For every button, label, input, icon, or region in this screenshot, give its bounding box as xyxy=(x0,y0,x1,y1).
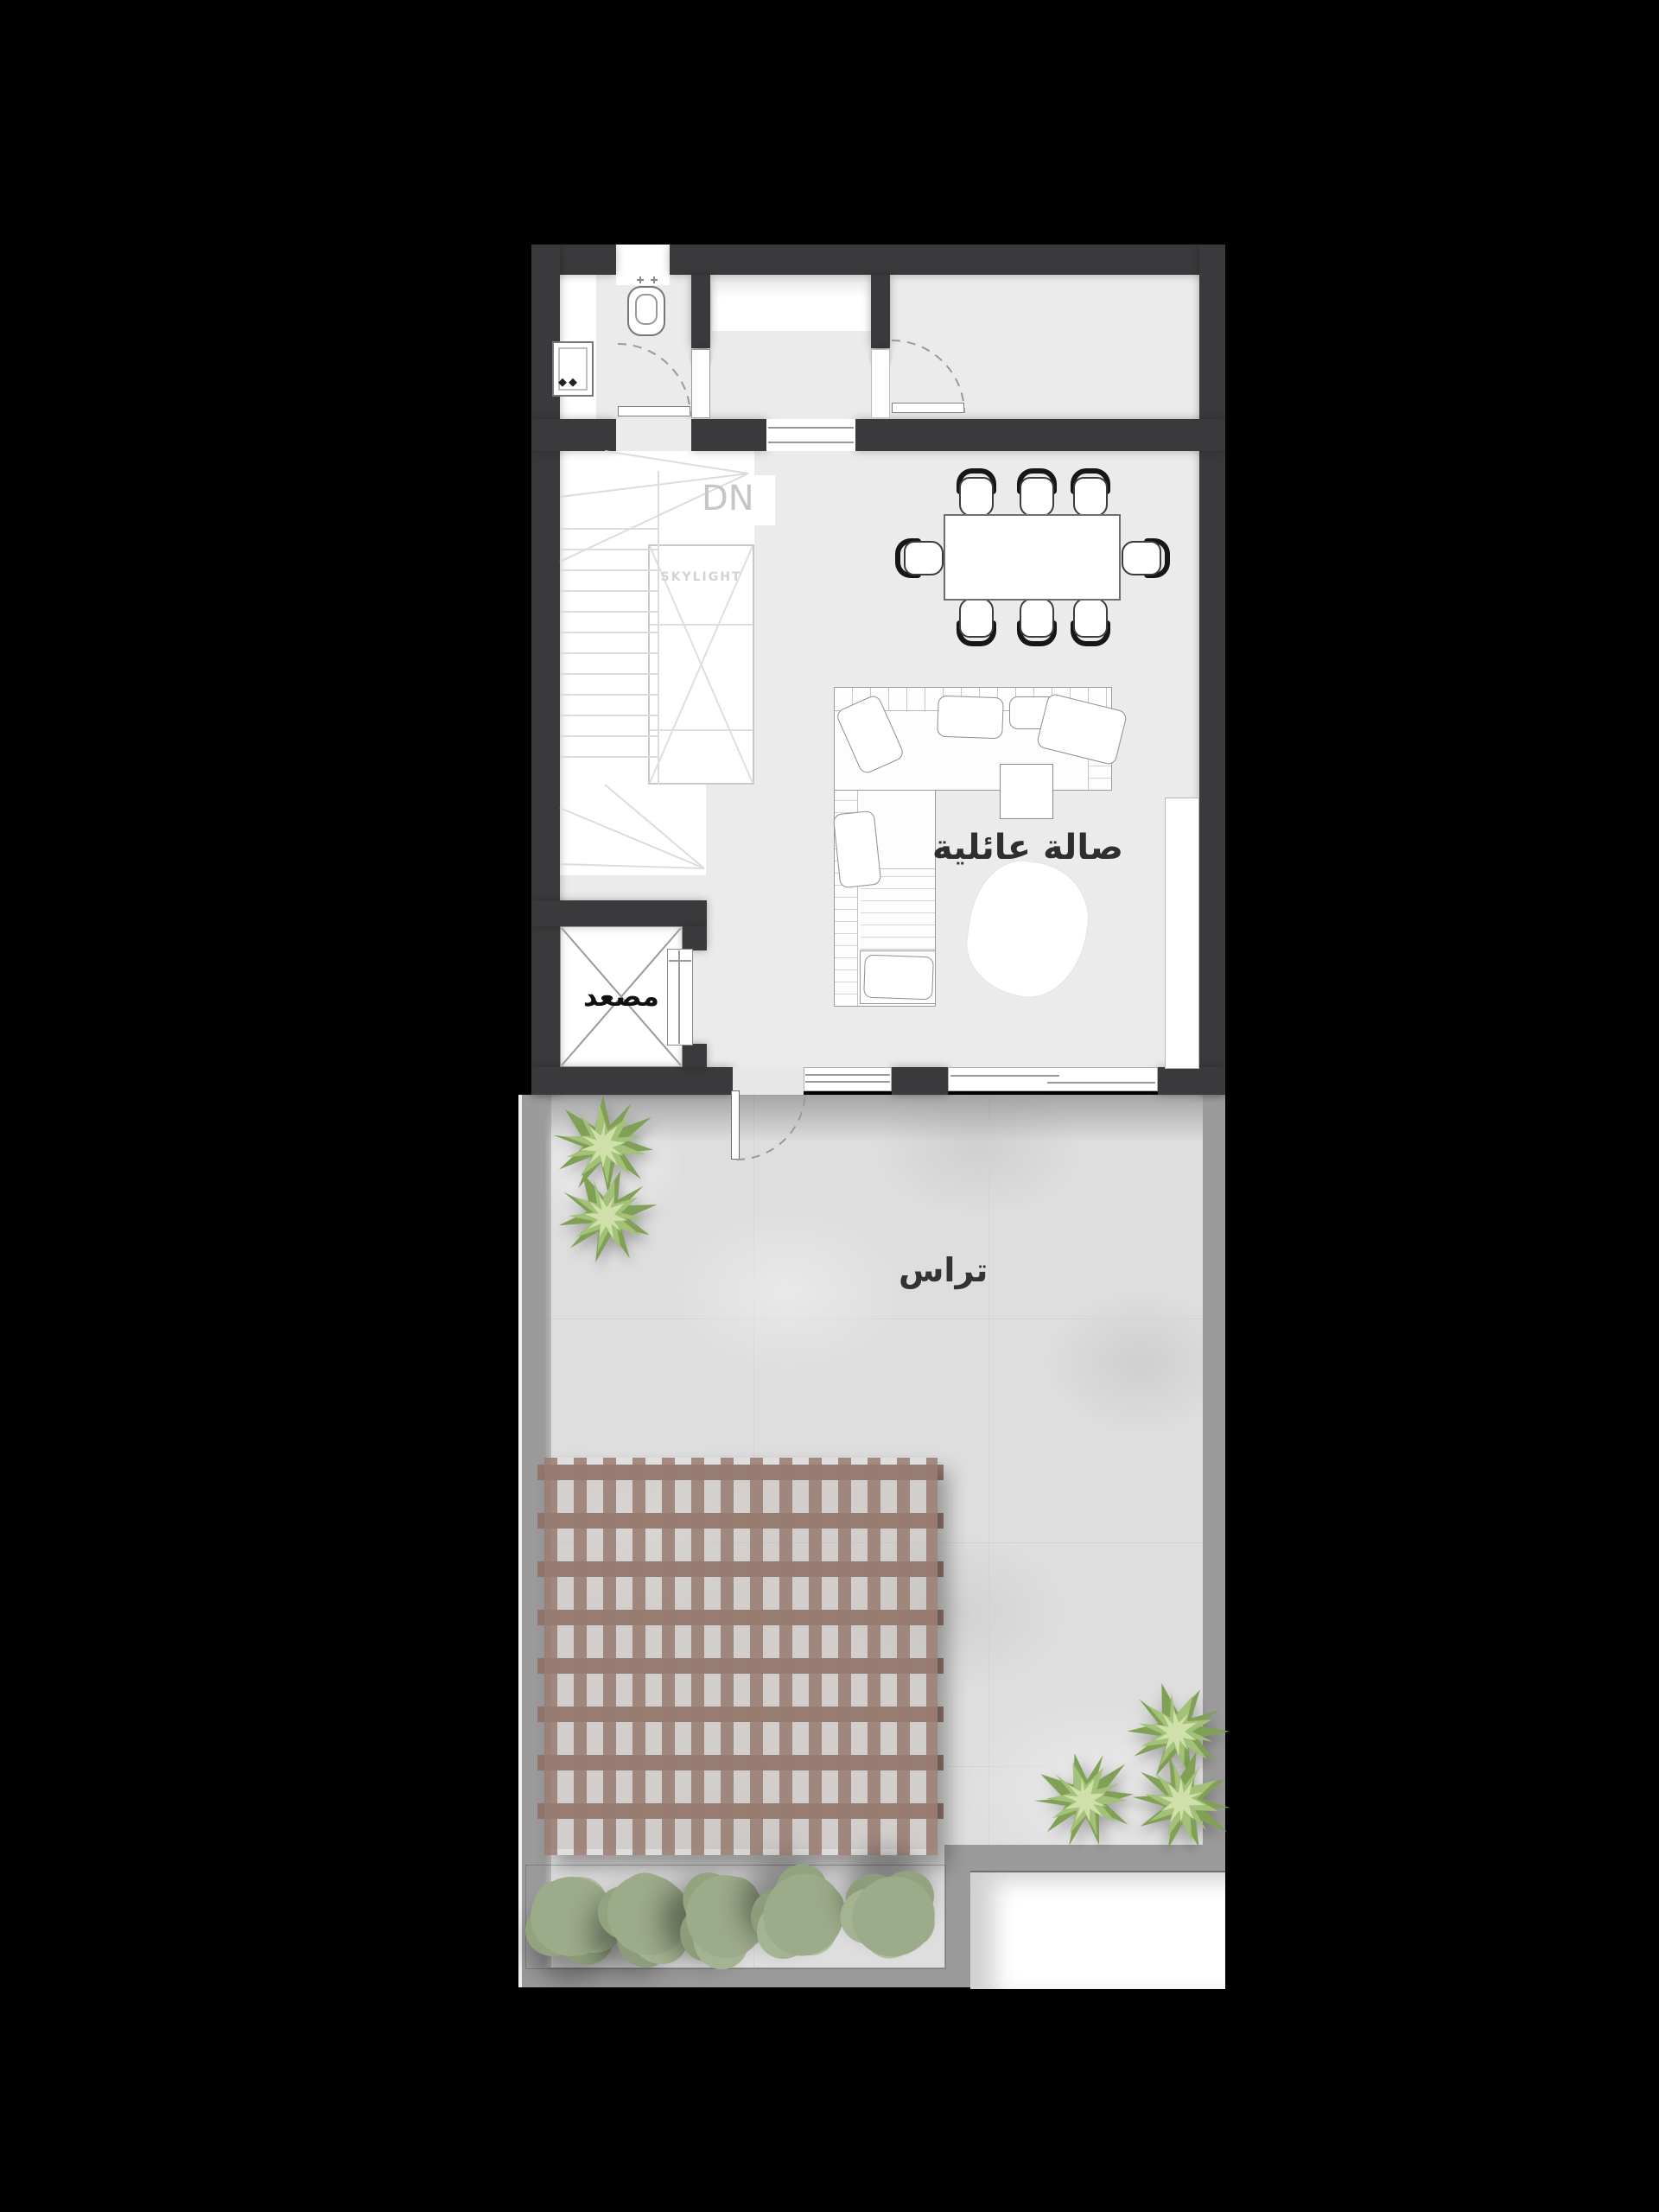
vanity-icon xyxy=(553,342,593,396)
pillow xyxy=(833,810,882,889)
dining-chair xyxy=(1070,598,1111,646)
family-hall-label: صالة عائلية xyxy=(950,828,1123,868)
floor-plan-canvas: تراس xyxy=(0,0,1659,2212)
terrace-door-arc xyxy=(736,1090,805,1160)
pillow xyxy=(937,696,1004,740)
coffee-table xyxy=(1000,764,1053,819)
dining-chair xyxy=(895,537,944,579)
dining-chair xyxy=(1070,468,1111,517)
toilet-icon xyxy=(628,276,664,335)
dining-chair xyxy=(956,598,997,646)
dining-chair xyxy=(1122,537,1170,579)
dining-table xyxy=(944,514,1121,601)
tv-console xyxy=(1165,798,1199,1069)
pillow xyxy=(863,955,934,1001)
dn-label: DN xyxy=(702,479,754,518)
dining-chair xyxy=(1016,598,1058,646)
dining-chair xyxy=(1016,468,1058,517)
elevator-label: مصعد xyxy=(560,980,683,1013)
dining-chair xyxy=(956,468,997,517)
plan-linework xyxy=(0,0,1659,2212)
room-door-arc xyxy=(892,340,964,413)
bathroom-door-arc xyxy=(618,344,690,416)
skylight-label: SKYLIGHT xyxy=(648,570,754,584)
